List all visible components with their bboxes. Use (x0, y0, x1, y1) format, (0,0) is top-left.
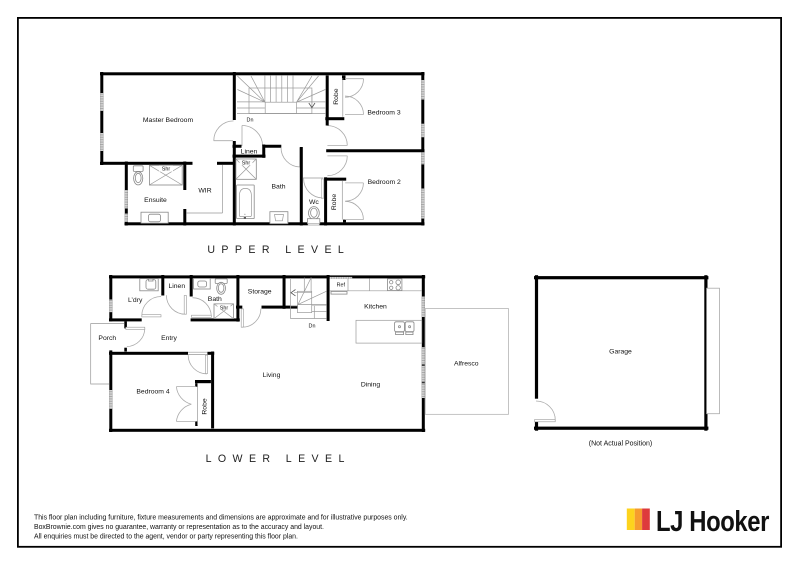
svg-text:Kitchen: Kitchen (364, 303, 387, 310)
svg-text:UPPER LEVEL: UPPER LEVEL (207, 244, 350, 256)
svg-text:Bedroom 4: Bedroom 4 (136, 389, 169, 396)
svg-text:Robe: Robe (333, 88, 340, 104)
svg-text:Master Bedroom: Master Bedroom (143, 117, 194, 124)
svg-text:L’dry: L’dry (128, 297, 143, 304)
svg-text:Bedroom 2: Bedroom 2 (368, 179, 401, 186)
svg-text:Storage: Storage (248, 288, 272, 295)
svg-text:Bath: Bath (272, 184, 286, 191)
svg-text:LJ Hooker: LJ Hooker (656, 506, 769, 538)
svg-text:Bedroom 3: Bedroom 3 (367, 109, 400, 116)
svg-text:WIR: WIR (198, 188, 211, 195)
svg-text:(Not Actual Position): (Not Actual Position) (589, 440, 652, 447)
svg-text:All enquiries must be directed: All enquiries must be directed to the ag… (34, 534, 298, 541)
svg-text:Shr: Shr (220, 305, 229, 311)
svg-text:Shr: Shr (242, 160, 251, 166)
svg-text:Robe: Robe (202, 398, 209, 414)
svg-text:Wc: Wc (309, 199, 319, 206)
svg-text:Dn: Dn (309, 323, 316, 329)
svg-text:Entry: Entry (161, 335, 177, 342)
svg-text:Bath: Bath (208, 296, 222, 303)
svg-text:Ref: Ref (337, 282, 346, 288)
svg-text:Living: Living (263, 372, 281, 379)
svg-text:Shr: Shr (162, 167, 171, 173)
svg-text:This floor plan including furn: This floor plan including furniture, fix… (34, 515, 408, 522)
svg-text:LOWER LEVEL: LOWER LEVEL (206, 453, 351, 465)
svg-text:Garage: Garage (609, 349, 632, 356)
svg-text:Alfresco: Alfresco (454, 361, 479, 368)
svg-text:Robe: Robe (331, 194, 338, 210)
svg-text:Porch: Porch (98, 335, 116, 342)
svg-text:Dining: Dining (361, 382, 380, 389)
svg-text:Linen: Linen (241, 149, 258, 156)
svg-text:Dn: Dn (247, 118, 254, 124)
svg-text:Ensuite: Ensuite (144, 197, 167, 204)
svg-text:BoxBrownie.com gives no guaran: BoxBrownie.com gives no guarantee, warra… (34, 524, 324, 531)
svg-text:Linen: Linen (168, 283, 185, 290)
